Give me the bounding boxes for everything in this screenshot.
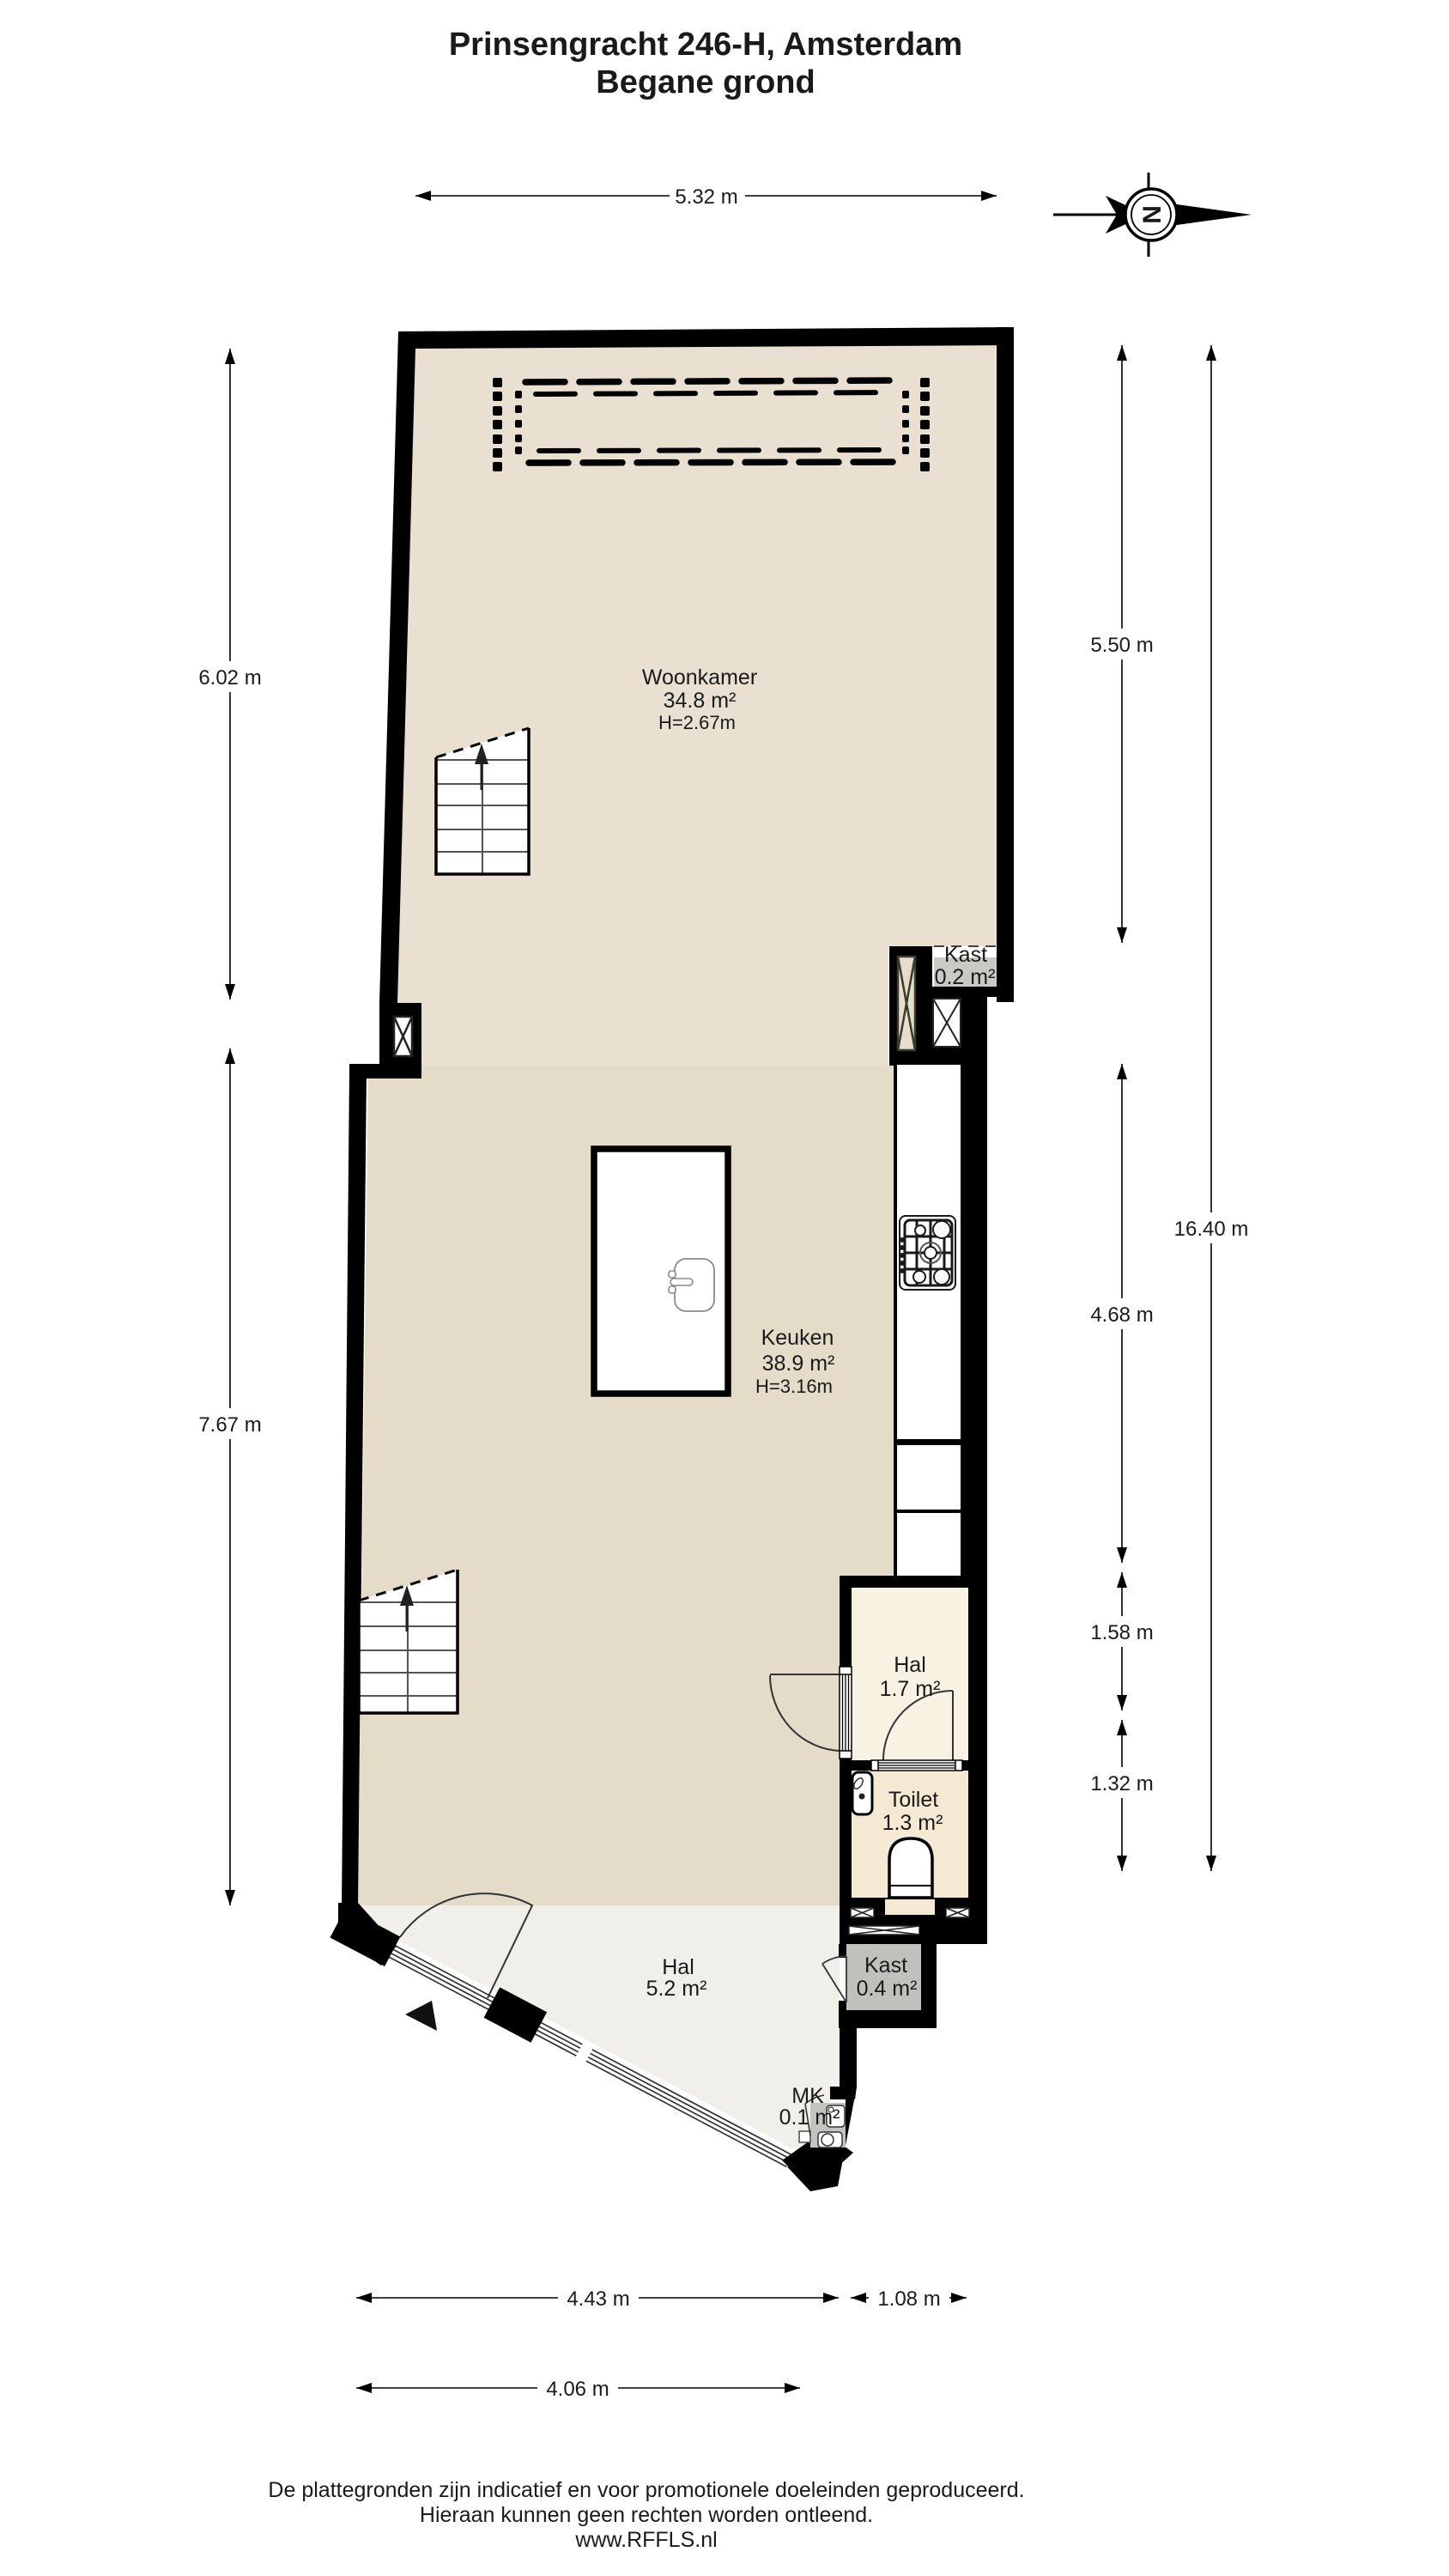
svg-text:Kast: Kast (864, 1953, 907, 1978)
svg-text:1.58 m: 1.58 m (1090, 1621, 1153, 1644)
svg-text:Woonkamer: Woonkamer (642, 665, 757, 690)
svg-text:5.32 m: 5.32 m (675, 185, 737, 209)
svg-text:Kast: Kast (944, 943, 987, 967)
svg-text:4.06 m: 4.06 m (546, 2378, 609, 2401)
svg-text:34.8 m²: 34.8 m² (664, 689, 737, 713)
svg-text:6.02 m: 6.02 m (198, 666, 261, 690)
svg-text:16.40 m: 16.40 m (1174, 1218, 1249, 1241)
svg-text:4.68 m: 4.68 m (1090, 1303, 1153, 1327)
svg-text:1.7 m²: 1.7 m² (880, 1677, 941, 1701)
svg-text:MK: MK (791, 2084, 824, 2108)
svg-text:H=2.67m: H=2.67m (658, 712, 736, 733)
svg-text:Toilet: Toilet (888, 1788, 938, 1812)
svg-text:Hieraan kunnen geen rechten wo: Hieraan kunnen geen rechten worden ontle… (420, 2503, 873, 2527)
svg-text:0.2 m²: 0.2 m² (935, 965, 996, 989)
svg-text:0.1 m²: 0.1 m² (779, 2105, 840, 2129)
svg-text:Prinsengracht 246-H, Amsterdam: Prinsengracht 246-H, Amsterdam (449, 27, 962, 63)
svg-text:Begane grond: Begane grond (596, 64, 815, 100)
svg-text:0.4 m²: 0.4 m² (857, 1977, 918, 2001)
svg-text:4.43 m: 4.43 m (567, 2287, 629, 2311)
svg-text:5.2 m²: 5.2 m² (646, 1977, 707, 2001)
svg-text:www.RFFLS.nl: www.RFFLS.nl (574, 2528, 717, 2552)
svg-text:H=3.16m: H=3.16m (755, 1376, 833, 1397)
svg-text:N: N (1137, 205, 1166, 224)
svg-text:7.67 m: 7.67 m (198, 1413, 261, 1437)
svg-text:1.32 m: 1.32 m (1090, 1772, 1153, 1795)
svg-text:Hal: Hal (894, 1653, 926, 1677)
svg-text:Keuken: Keuken (761, 1326, 834, 1350)
svg-text:Hal: Hal (662, 1955, 694, 1979)
svg-text:1.08 m: 1.08 m (877, 2287, 940, 2311)
svg-text:38.9 m²: 38.9 m² (762, 1352, 835, 1376)
svg-text:5.50 m: 5.50 m (1090, 634, 1153, 657)
svg-text:1.3 m²: 1.3 m² (882, 1811, 943, 1835)
svg-text:De plattegronden zijn indicati: De plattegronden zijn indicatief en voor… (268, 2478, 1024, 2502)
